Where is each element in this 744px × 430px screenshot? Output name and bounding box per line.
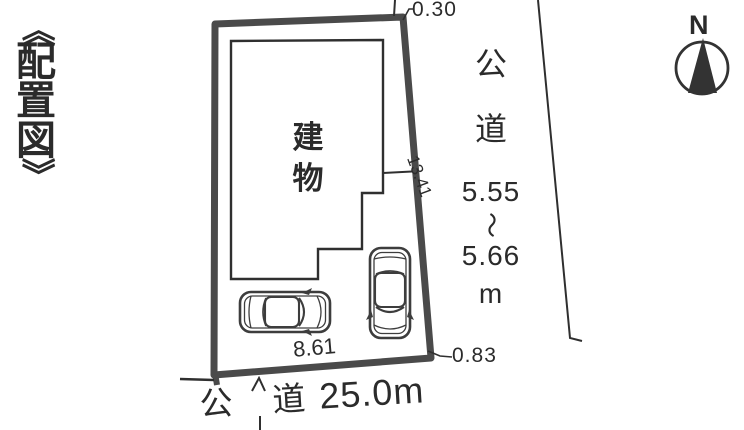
north-arrow-compass-icon — [676, 38, 728, 94]
title-close-bracket: 》 — [22, 157, 49, 191]
compass-north-label: N — [689, 10, 709, 41]
dim-bottom-corner-offset: 0.83 — [452, 344, 497, 368]
right-road-name-char: 公 — [475, 48, 507, 80]
car-top-view-horizontal-icon — [240, 288, 330, 336]
car-top-view-vertical-icon — [366, 248, 414, 338]
title-open-bracket: 《 — [22, 13, 49, 47]
title-char: 置 — [16, 82, 56, 121]
title-char: 配 — [16, 43, 56, 82]
right-road-edge — [538, 0, 582, 341]
right-road-unit: m — [479, 280, 503, 308]
site-plan-drawing — [0, 0, 744, 430]
title-char: 図 — [16, 122, 56, 161]
dim-top-corner-offset: 0.30 — [412, 0, 457, 22]
bottom-road-name-char: 公 — [198, 376, 234, 426]
dim-parking-frontage: 8.61 — [292, 333, 337, 363]
building-label: 建 物 — [290, 118, 326, 200]
page-title: 《 配 置 図 》 — [10, 16, 62, 188]
right-road-name-char: 道 — [475, 113, 507, 145]
bottom-road-name-char: 道 — [271, 372, 307, 422]
right-road-width-min: 5.55 — [462, 178, 521, 206]
bottom-road-width: 25.0m — [318, 369, 425, 417]
top-corner-tick — [394, 0, 395, 16]
range-tilde: 〜 — [478, 212, 504, 238]
right-road-label: 公 道 5.55 〜 5.66 m — [455, 48, 527, 308]
right-road-width-max: 5.66 — [462, 242, 521, 270]
building-label-char: 建 — [293, 118, 324, 159]
building-label-char: 物 — [293, 159, 324, 200]
